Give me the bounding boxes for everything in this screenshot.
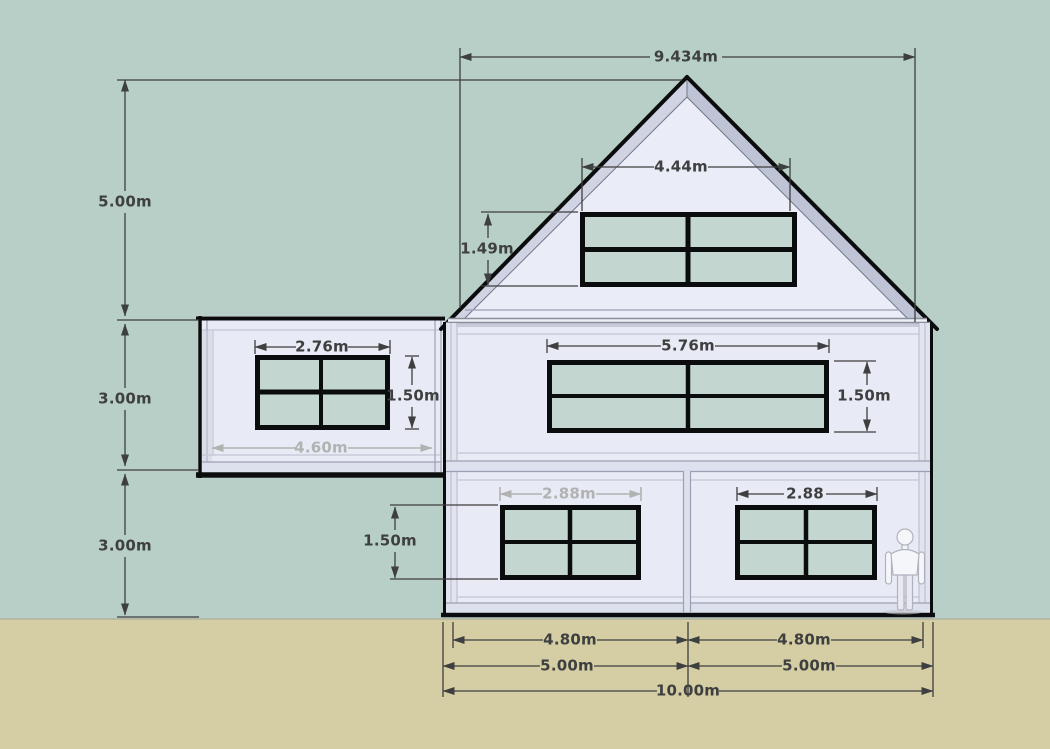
dim-annex-window-height-label: 1.50m [386,389,440,404]
ground [0,619,1050,749]
elevation-drawing-canvas: 9.434m 5.00m 3.00m 3.00m 4.44m 1.49m 2.7… [0,0,1050,749]
dim-total-width-label: 10.00m [656,684,720,699]
second-floor-window [547,360,829,433]
dim-ground-right-span-label: 4.80m [777,633,831,648]
dim-ground-left-window-width-label: 2.88m [542,487,596,502]
dim-attic-window-width-label: 4.44m [654,160,708,175]
attic-window [580,212,797,287]
dim-annex-width-label: 4.60m [294,441,348,456]
dim-floor1-height-label: 3.00m [98,539,152,554]
dim-ground-right-window-width-label: 2.88 [786,487,824,502]
ground-floor-window-right [735,505,877,580]
ground-floor-window-left [500,505,641,580]
dim-roof-height-label: 5.00m [98,195,152,210]
dim-bottom-left-half-label: 5.00m [540,659,594,674]
dim-ground-window-height-label: 1.50m [363,534,417,549]
dim-ground-left-span-label: 4.80m [543,633,597,648]
elevation-drawing [0,0,1050,749]
dim-annex-window-width-label: 2.76m [295,340,349,355]
dim-main-window-height-label: 1.50m [837,389,891,404]
dim-floor2-height-label: 3.00m [98,392,152,407]
dim-roof-slope-label: 9.434m [654,50,718,65]
dim-main-window-width-label: 5.76m [661,339,715,354]
dim-attic-window-height-label: 1.49m [460,242,514,257]
annex-window [255,357,390,430]
dim-bottom-right-half-label: 5.00m [782,659,836,674]
